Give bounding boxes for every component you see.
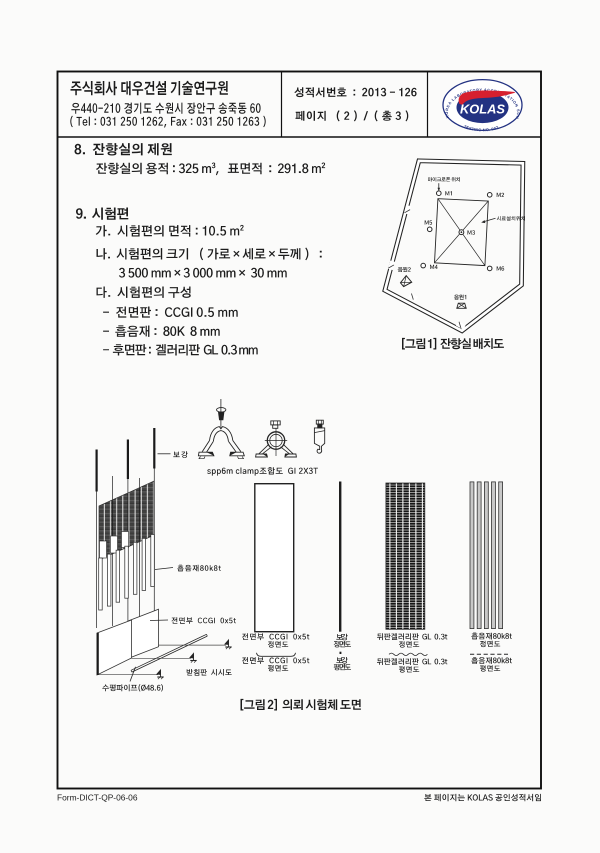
- svg-text:KOREA LABORATORY ACCREDITATION: KOREA LABORATORY ACCREDITATION SCHEME: [0, 0, 520, 120]
- svg-text:Form-DICT-QP-06-06: Form-DICT-QP-06-06: [57, 793, 138, 803]
- svg-text:KOLAS: KOLAS: [460, 102, 505, 117]
